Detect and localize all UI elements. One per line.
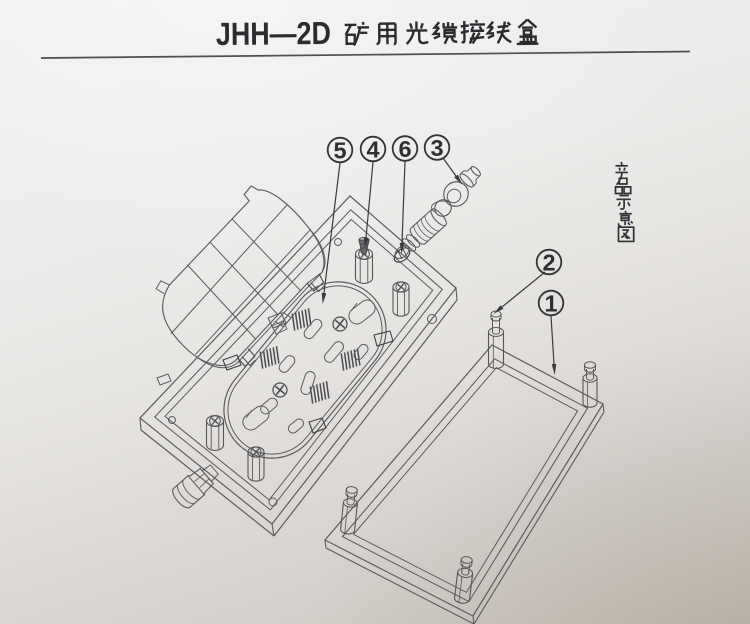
svg-text:4: 4 <box>366 136 379 162</box>
svg-text:5: 5 <box>333 137 346 163</box>
svg-text:2: 2 <box>542 249 555 275</box>
svg-text:JHH—2D: JHH—2D <box>216 15 331 52</box>
svg-text:6: 6 <box>398 136 411 162</box>
svg-text:3: 3 <box>430 135 443 161</box>
svg-text:1: 1 <box>544 290 557 316</box>
